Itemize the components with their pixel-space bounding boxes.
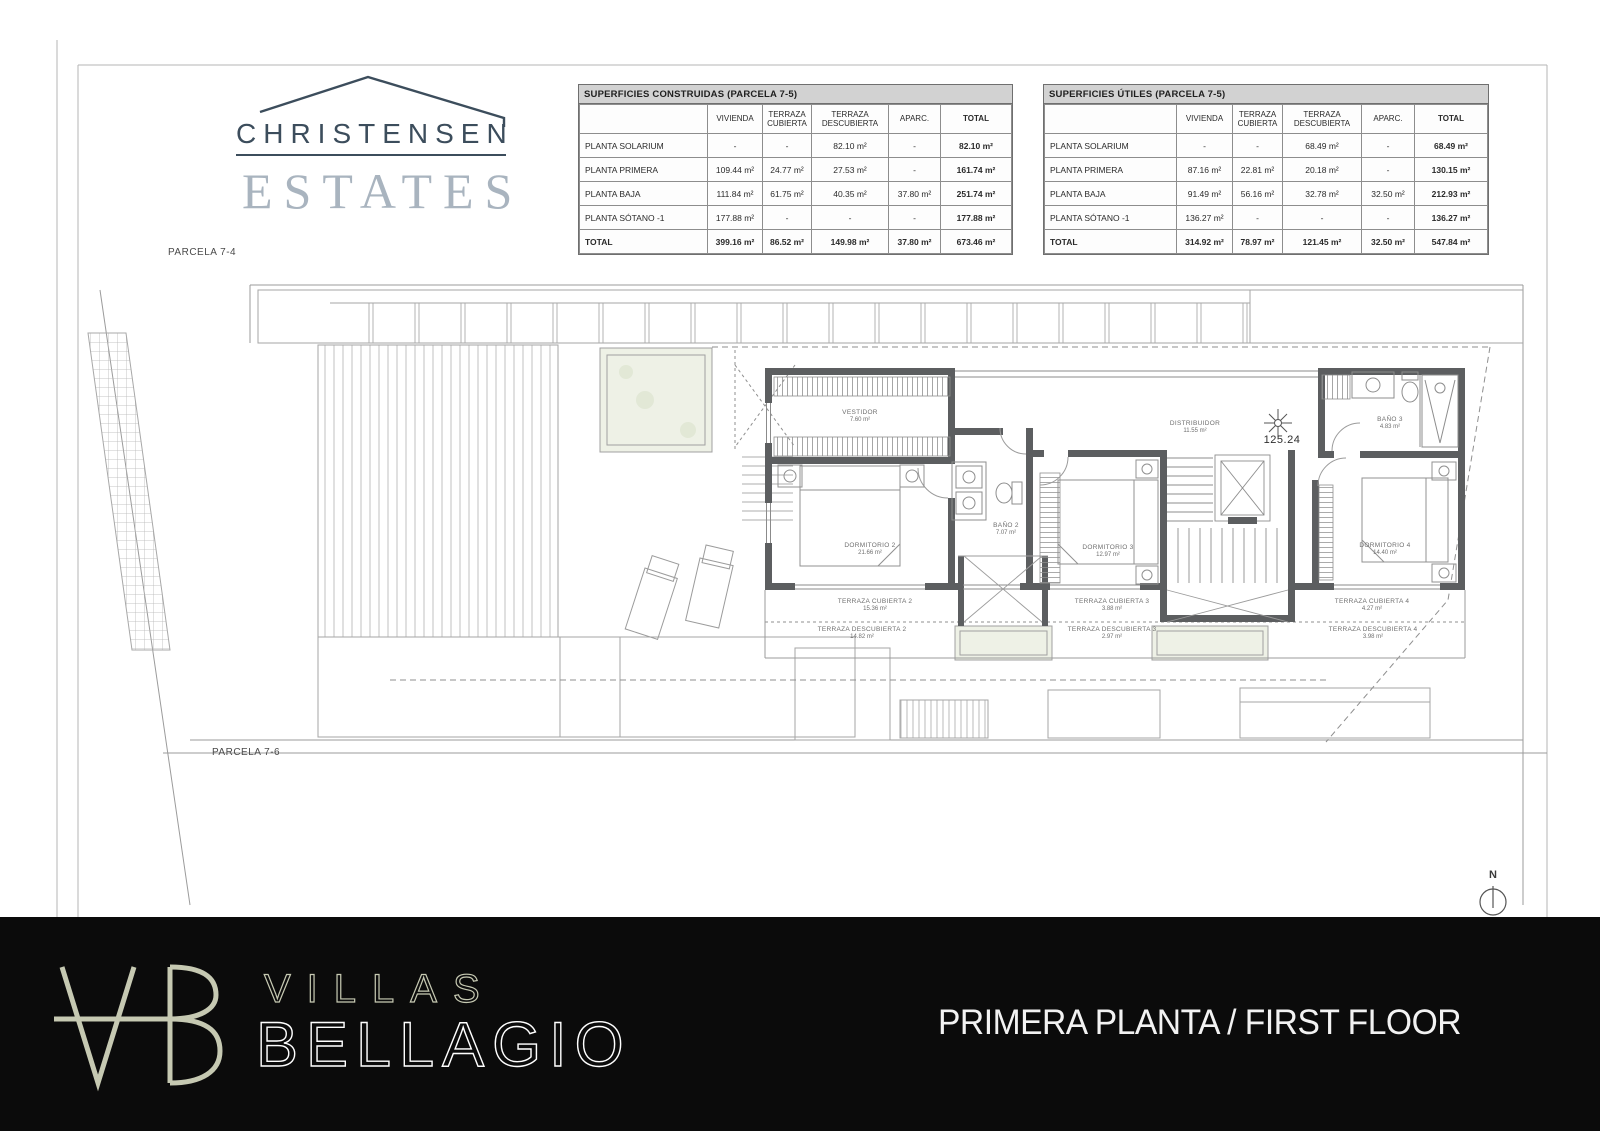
floorplan-drawing: [0, 0, 1600, 917]
stairs-lift: [1167, 455, 1277, 583]
label-terraza-cubierta-3: TERRAZA CUBIERTA 3 3.88 m²: [1075, 598, 1150, 614]
sun-loungers: [625, 544, 736, 639]
floor-title: PRIMERA PLANTA / FIRST FLOOR: [938, 1003, 1461, 1043]
brand-bellagio: BELLAGIO: [256, 1009, 632, 1081]
north-label: N: [1489, 869, 1497, 881]
label-terraza-cubierta-4: TERRAZA CUBIERTA 4 4.27 m²: [1335, 598, 1410, 614]
room-label-dormitorio-3: DORMITORIO 3 12.97 m²: [1082, 544, 1133, 560]
label-terraza-descubierta-3: TERRAZA DESCUBIERTA 3 2.97 m²: [1068, 626, 1157, 642]
footer-bar: VILLAS BELLAGIO PRIMERA PLANTA / FIRST F…: [0, 917, 1600, 1131]
room-label-vestidor: VESTIDOR 7.60 m²: [842, 409, 878, 425]
house-walls: [765, 368, 1465, 626]
pergola: [258, 290, 1523, 343]
parcela-7-6-label: PARCELA 7-6: [212, 747, 280, 758]
label-terraza-cubierta-2: TERRAZA CUBIERTA 2 15.36 m²: [838, 598, 913, 614]
room-label-bano-3: BAÑO 3 4.83 m²: [1377, 416, 1403, 432]
label-terraza-descubierta-4: TERRAZA DESCUBIERTA 4 3.98 m²: [1329, 626, 1418, 642]
furniture: [778, 460, 1456, 584]
brand-villas: VILLAS: [264, 967, 496, 1012]
room-label-distribuidor: DISTRIBUIDOR 11.55 m²: [1170, 420, 1220, 436]
level-mark-value: 125.24: [1264, 434, 1301, 446]
level-marker-icon: [1264, 409, 1292, 437]
parcela-7-4-label: PARCELA 7-4: [168, 247, 236, 258]
room-label-dormitorio-4: DORMITORIO 4 14.40 m²: [1359, 542, 1410, 558]
vb-monogram-icon: [50, 957, 245, 1092]
north-arrow-icon: [1480, 886, 1506, 915]
room-label-dormitorio-2: DORMITORIO 2 21.66 m²: [844, 542, 895, 558]
label-terraza-descubierta-2: TERRAZA DESCUBIERTA 2 14.82 m²: [818, 626, 907, 642]
room-label-bano-2: BAÑO 2 7.07 m²: [993, 522, 1019, 538]
